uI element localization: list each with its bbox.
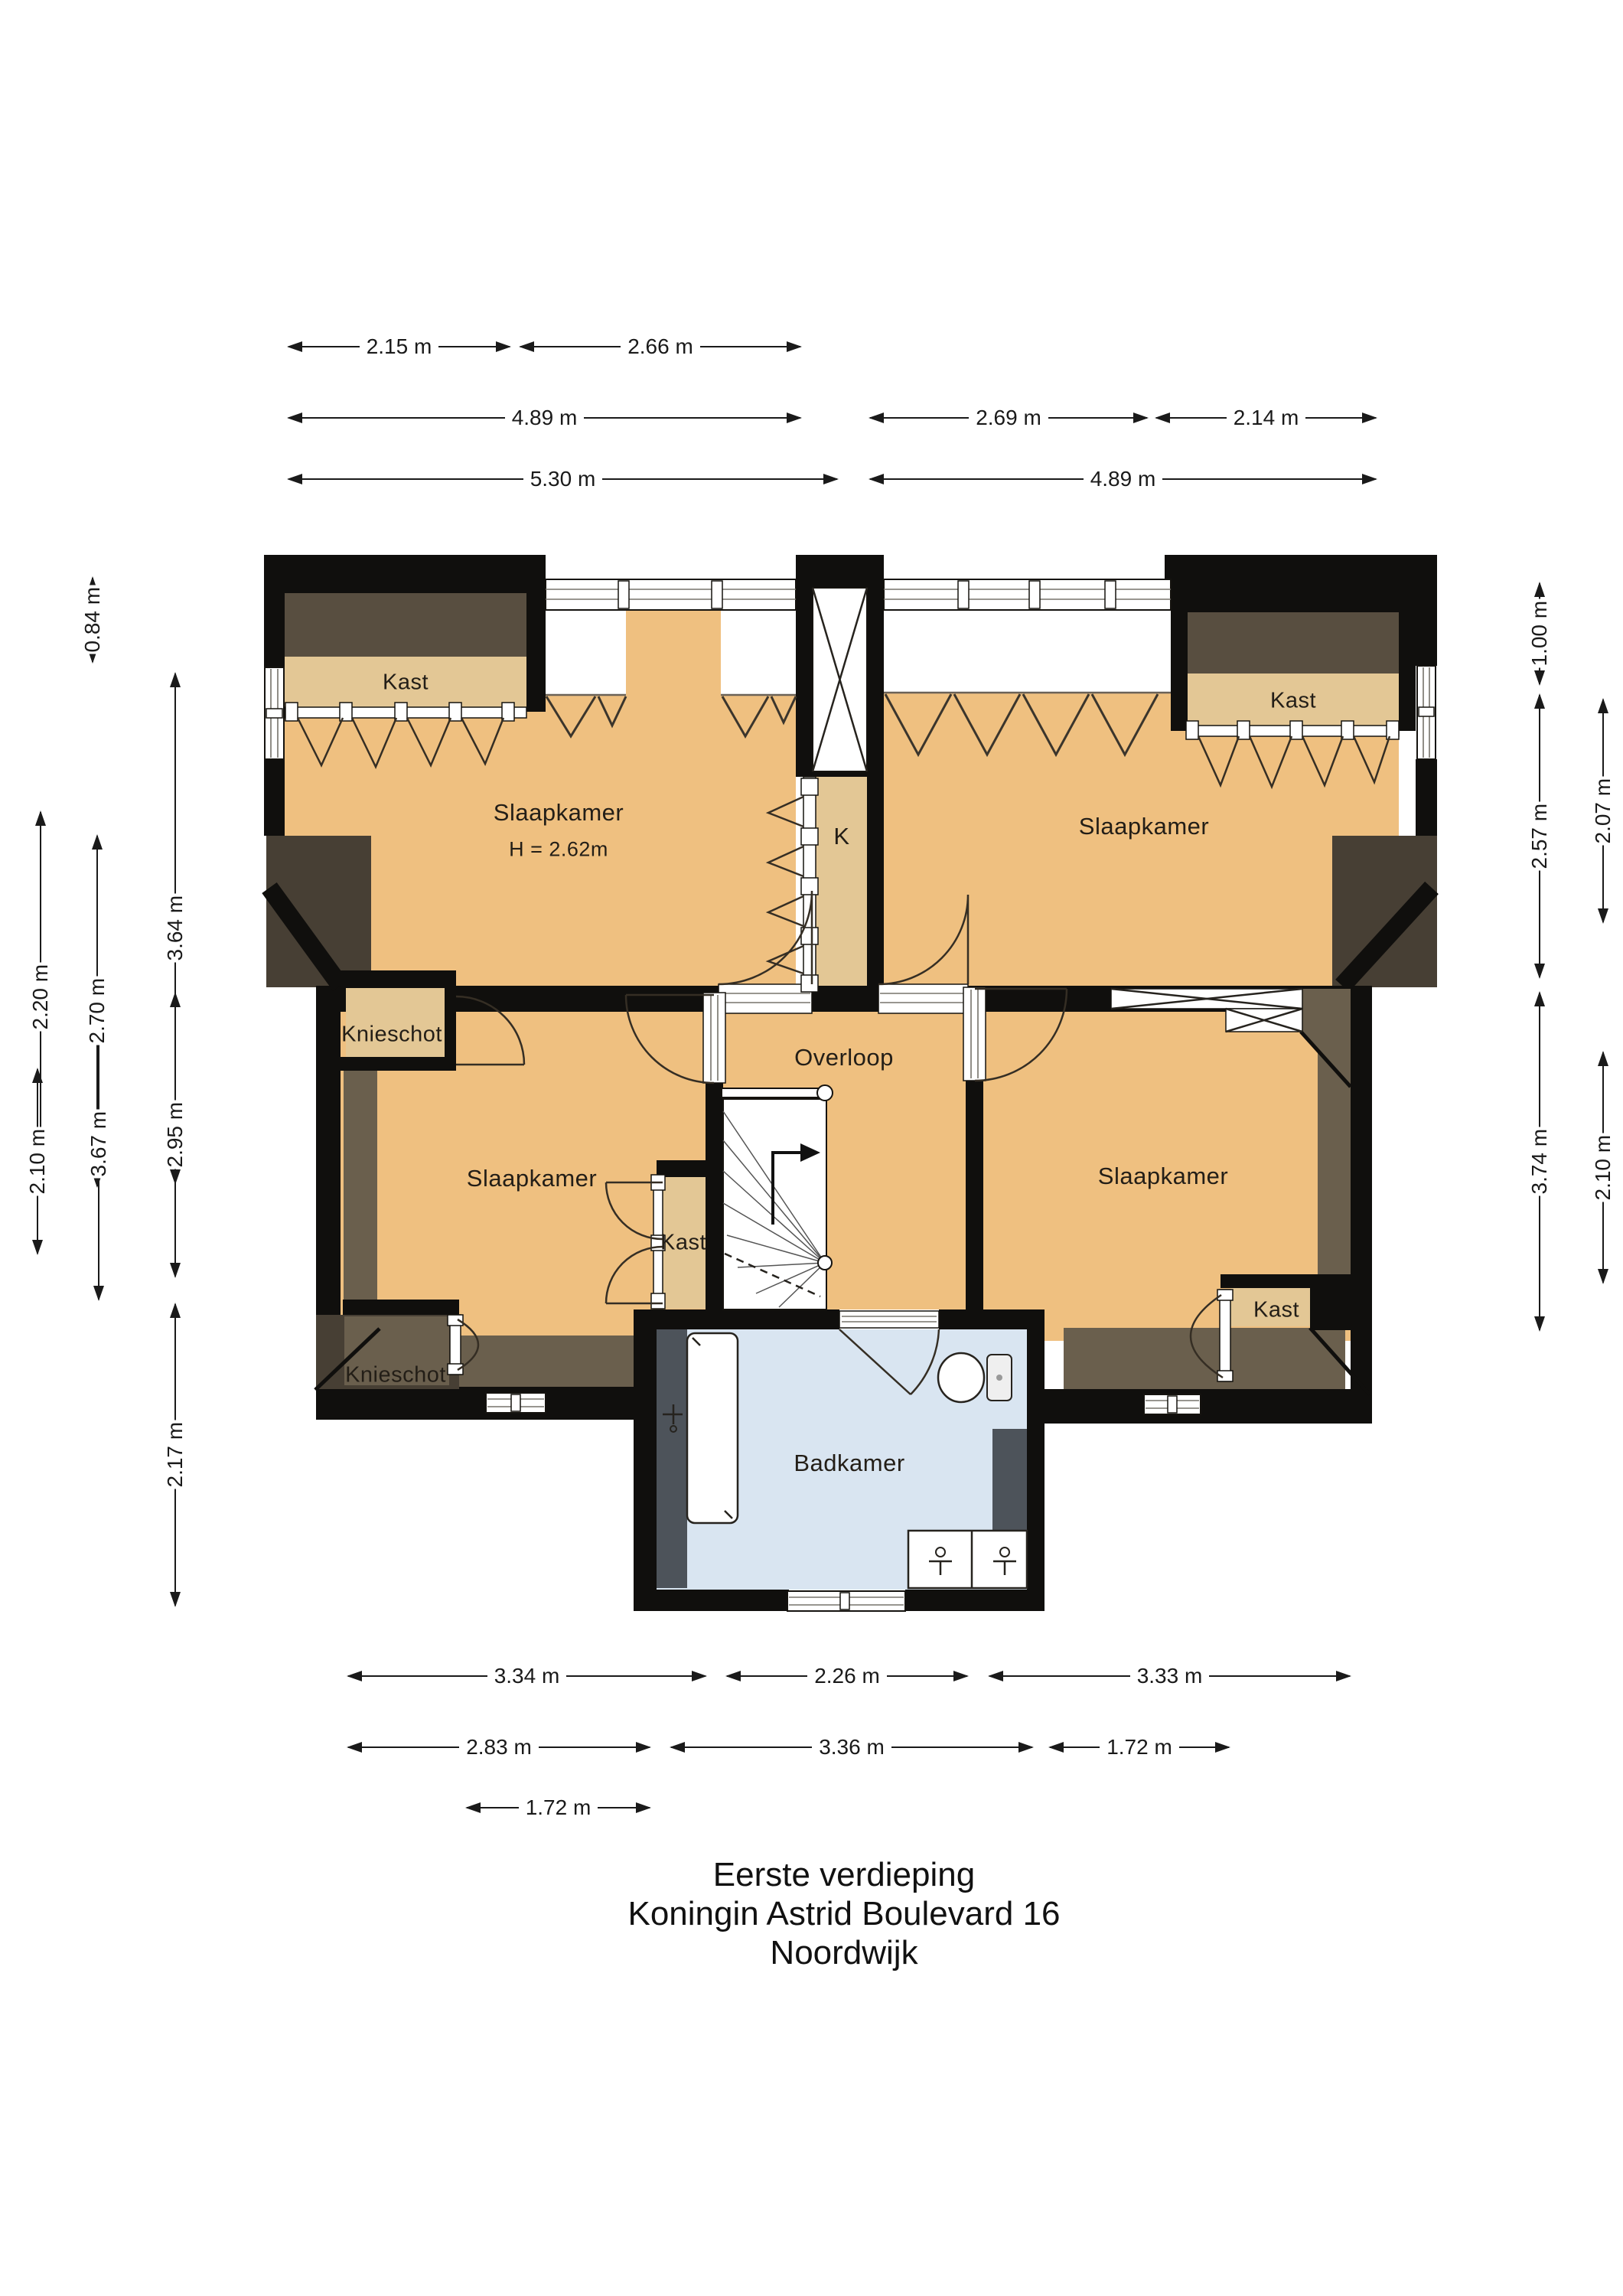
dim-right-2-57: 2.57 m	[1529, 693, 1550, 979]
title-city: Noordwijk	[627, 1933, 1060, 1972]
room-label-kast-top-right: Kast	[1270, 689, 1316, 714]
window-bathroom	[787, 1591, 905, 1611]
void-cross-a	[1111, 989, 1302, 1009]
toilet	[938, 1353, 1012, 1402]
dim-left-2-95: 2.95 m	[165, 992, 186, 1278]
window-right-wall	[1417, 666, 1436, 759]
window-band-left	[546, 579, 796, 610]
room-label-k-closet: K	[833, 823, 849, 850]
dim-bottom-1-72-left: 1.72 m	[465, 1797, 651, 1818]
dim-right-1-00: 1.00 m	[1529, 582, 1550, 686]
title-floor: Eerste verdieping	[627, 1855, 1060, 1894]
room-height-note: H = 2.62m	[509, 838, 608, 862]
dim-top-2-69: 2.69 m	[869, 407, 1149, 429]
void-cross-b	[1226, 1009, 1302, 1032]
dim-top-4-89-left: 4.89 m	[287, 407, 802, 429]
bathroom-cabinet	[992, 1429, 1027, 1531]
dim-bottom-3-34: 3.34 m	[347, 1665, 707, 1687]
dim-bottom-3-36: 3.36 m	[670, 1737, 1034, 1758]
room-label-slaapkamer-bottom-right: Slaapkamer	[1098, 1163, 1228, 1190]
dim-top-4-89-right: 4.89 m	[869, 468, 1377, 490]
dim-top-2-66: 2.66 m	[519, 336, 802, 357]
floorplan-page: Slaapkamer H = 2.62m Slaapkamer K Kast K…	[0, 0, 1623, 2296]
dim-bottom-2-26: 2.26 m	[725, 1665, 969, 1687]
window-band-right	[884, 579, 1171, 610]
dim-bottom-3-33: 3.33 m	[988, 1665, 1351, 1687]
room-label-knieschot-lower: Knieschot	[345, 1363, 446, 1388]
title-address: Koningin Astrid Boulevard 16	[627, 1894, 1060, 1933]
dim-top-2-14: 2.14 m	[1155, 407, 1377, 429]
shower-tray	[687, 1333, 738, 1523]
dim-bottom-2-83: 2.83 m	[347, 1737, 651, 1758]
room-label-slaapkamer-bottom-left: Slaapkamer	[467, 1165, 597, 1192]
room-label-kast-bottom-left: Kast	[660, 1231, 706, 1256]
stair-handrail	[722, 1088, 823, 1097]
room-label-overloop: Overloop	[794, 1044, 894, 1071]
window-wing-right	[1144, 1394, 1201, 1414]
dim-top-2-15: 2.15 m	[287, 336, 511, 357]
room-label-badkamer: Badkamer	[794, 1450, 904, 1477]
dim-left-2-17: 2.17 m	[165, 1303, 186, 1607]
room-label-slaapkamer-top-left: Slaapkamer	[494, 799, 624, 827]
room-label-kast-bottom-right: Kast	[1253, 1298, 1299, 1323]
staircase	[722, 1085, 833, 1309]
shower-wall-band	[657, 1329, 687, 1588]
plan-title: Eerste verdieping Koningin Astrid Boulev…	[627, 1855, 1060, 1972]
kast-bottom-right-door-leaf	[1217, 1290, 1233, 1381]
dim-right-2-07: 2.07 m	[1592, 698, 1614, 924]
washbasin-vanity	[908, 1531, 1027, 1588]
dim-right-2-10: 2.10 m	[1592, 1051, 1614, 1284]
knieschot-lower-door-leaf	[448, 1315, 463, 1375]
window-wing-left	[486, 1393, 546, 1413]
dim-top-5-30: 5.30 m	[287, 468, 839, 490]
knieschot-closet-upper	[341, 970, 456, 1071]
dim-left-0-84: 0.84 m	[82, 576, 103, 664]
room-label-slaapkamer-top-right: Slaapkamer	[1079, 813, 1209, 840]
stair-newel	[818, 1256, 832, 1270]
room-label-knieschot-upper: Knieschot	[341, 1022, 442, 1048]
window-left-wall	[265, 667, 284, 759]
dim-bottom-1-72-right: 1.72 m	[1048, 1737, 1230, 1758]
dim-left-2-10: 2.10 m	[27, 1068, 48, 1255]
room-label-kast-top-left: Kast	[383, 670, 429, 696]
chimney-shaft	[813, 588, 867, 771]
dim-right-3-74: 3.74 m	[1529, 991, 1550, 1332]
